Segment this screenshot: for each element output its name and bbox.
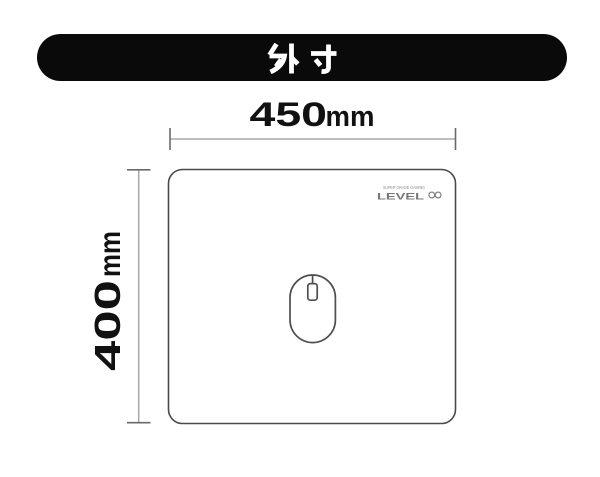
svg-text:LEVEL: LEVEL (377, 192, 425, 202)
svg-text:400: 400 (87, 280, 128, 371)
svg-text:SUPER GRADE GAMING: SUPER GRADE GAMING (383, 185, 425, 190)
svg-text:450: 450 (250, 96, 328, 134)
svg-text:mm: mm (94, 231, 127, 277)
svg-text:mm: mm (326, 101, 375, 133)
